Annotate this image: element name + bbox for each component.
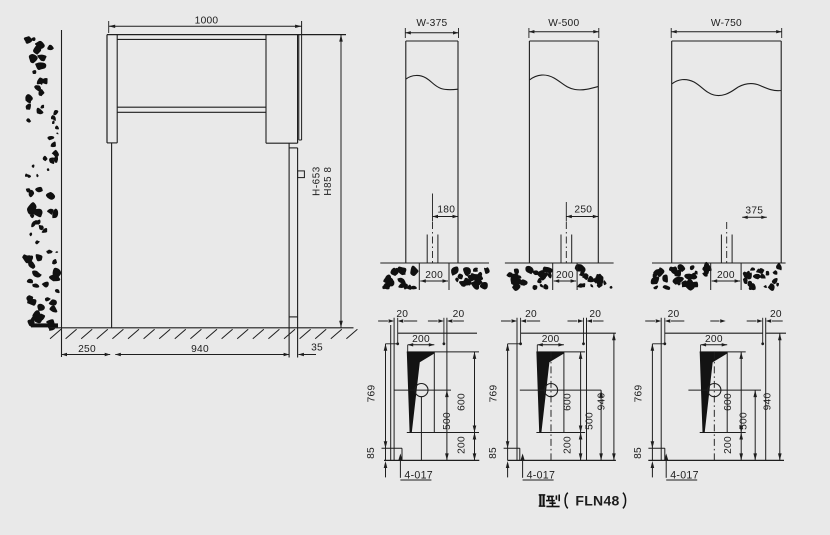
svg-text:769: 769	[367, 385, 378, 403]
svg-text:375: 375	[745, 206, 763, 217]
svg-text:200: 200	[542, 334, 560, 345]
svg-text:200: 200	[717, 270, 735, 281]
svg-text:200: 200	[556, 270, 574, 281]
svg-text:769: 769	[489, 385, 500, 403]
svg-text:85: 85	[633, 447, 644, 459]
svg-text:180: 180	[437, 205, 455, 216]
svg-text:35: 35	[311, 343, 323, 354]
svg-text:85: 85	[366, 447, 377, 459]
svg-text:250: 250	[574, 205, 592, 216]
svg-text:250: 250	[78, 344, 96, 355]
svg-text:20: 20	[770, 309, 782, 320]
svg-text:940: 940	[597, 393, 608, 411]
svg-text:1000: 1000	[195, 15, 219, 26]
svg-text:200: 200	[705, 334, 723, 345]
svg-text:200: 200	[425, 270, 443, 281]
svg-text:FLN48: FLN48	[575, 493, 619, 509]
svg-text:200: 200	[412, 334, 430, 345]
svg-text:85: 85	[488, 447, 499, 459]
svg-text:500: 500	[442, 412, 453, 430]
svg-text:600: 600	[563, 393, 574, 411]
svg-text:200: 200	[457, 436, 468, 454]
svg-text:940: 940	[763, 393, 774, 411]
svg-text:500: 500	[739, 412, 750, 430]
svg-text:4-017: 4-017	[527, 469, 556, 481]
svg-text:W-375: W-375	[416, 18, 447, 29]
svg-text:4-017: 4-017	[404, 469, 433, 481]
svg-text:20: 20	[668, 309, 680, 320]
svg-text:W-750: W-750	[711, 18, 742, 29]
svg-text:940: 940	[191, 344, 209, 355]
svg-text:769: 769	[633, 385, 644, 403]
svg-text:200: 200	[563, 436, 574, 454]
svg-text:200: 200	[723, 436, 734, 454]
svg-text:4-017: 4-017	[670, 469, 699, 481]
svg-text:W-500: W-500	[548, 18, 579, 29]
svg-text:H85 8: H85 8	[323, 166, 334, 195]
svg-text:20: 20	[453, 309, 465, 320]
svg-text:20: 20	[589, 309, 601, 320]
svg-text:500: 500	[585, 412, 596, 430]
svg-text:600: 600	[723, 393, 734, 411]
svg-text:H-653: H-653	[312, 166, 323, 196]
svg-text:20: 20	[525, 309, 537, 320]
svg-text:600: 600	[457, 393, 468, 411]
svg-text:20: 20	[396, 309, 408, 320]
